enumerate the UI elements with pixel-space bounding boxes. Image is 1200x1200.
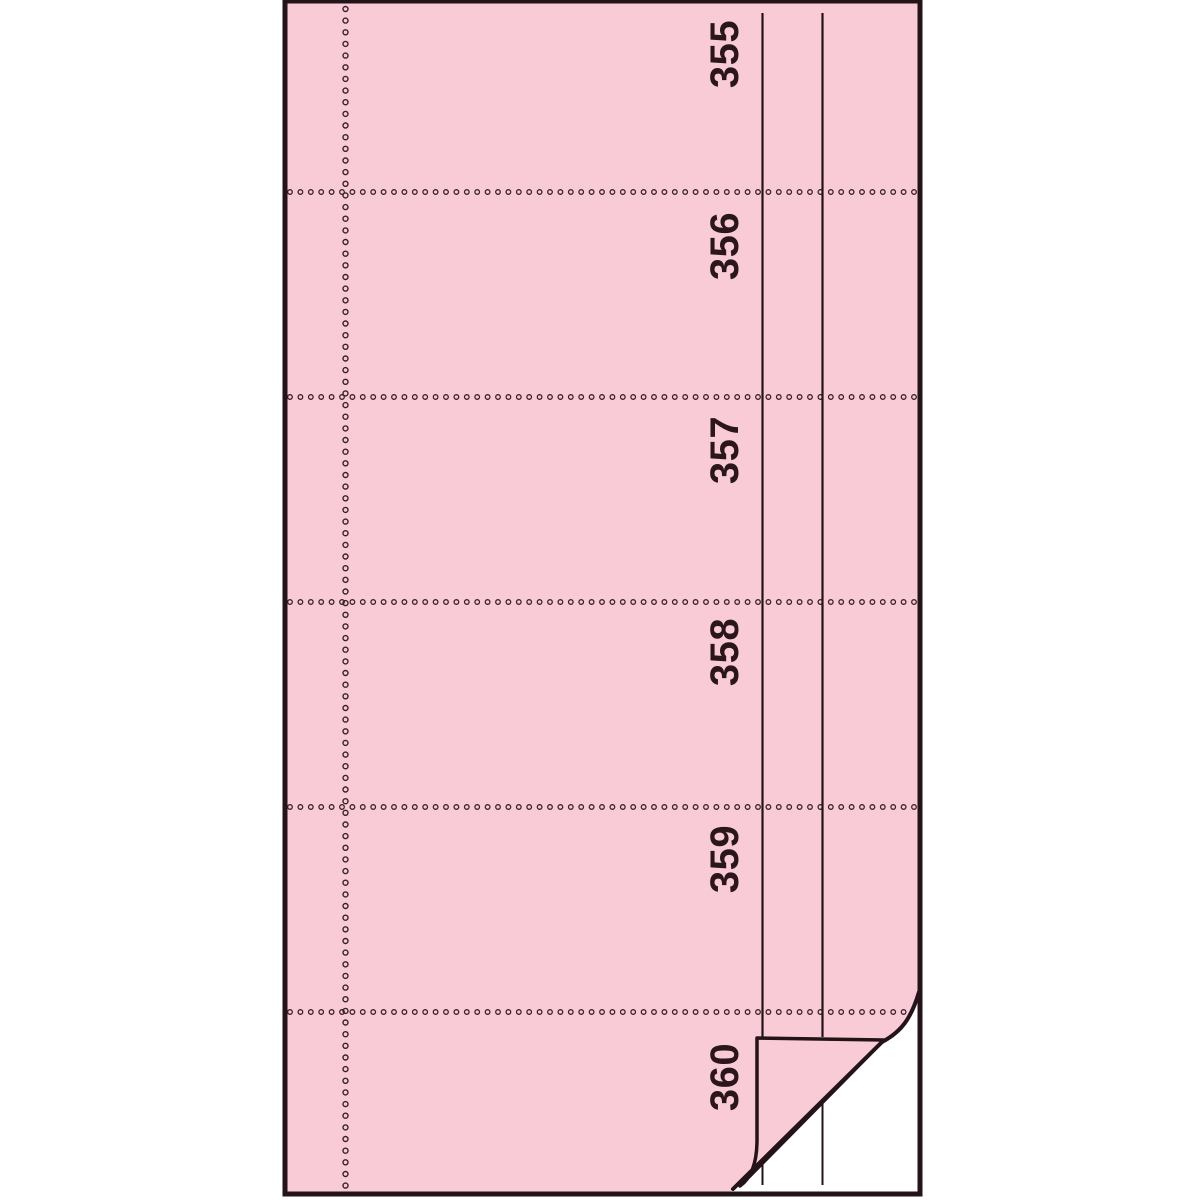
section-number-357: 357 xyxy=(703,416,747,484)
bon-sheet-graphic: 355356357358359360 xyxy=(0,0,1200,1200)
sheet-paper xyxy=(285,1,920,1194)
section-number-360: 360 xyxy=(703,1043,747,1111)
section-number-356: 356 xyxy=(703,212,747,280)
section-number-358: 358 xyxy=(703,618,747,686)
section-number-359: 359 xyxy=(703,825,747,893)
section-number-355: 355 xyxy=(703,20,747,88)
bon-book-product-photo: 355356357358359360 xyxy=(0,0,1200,1200)
